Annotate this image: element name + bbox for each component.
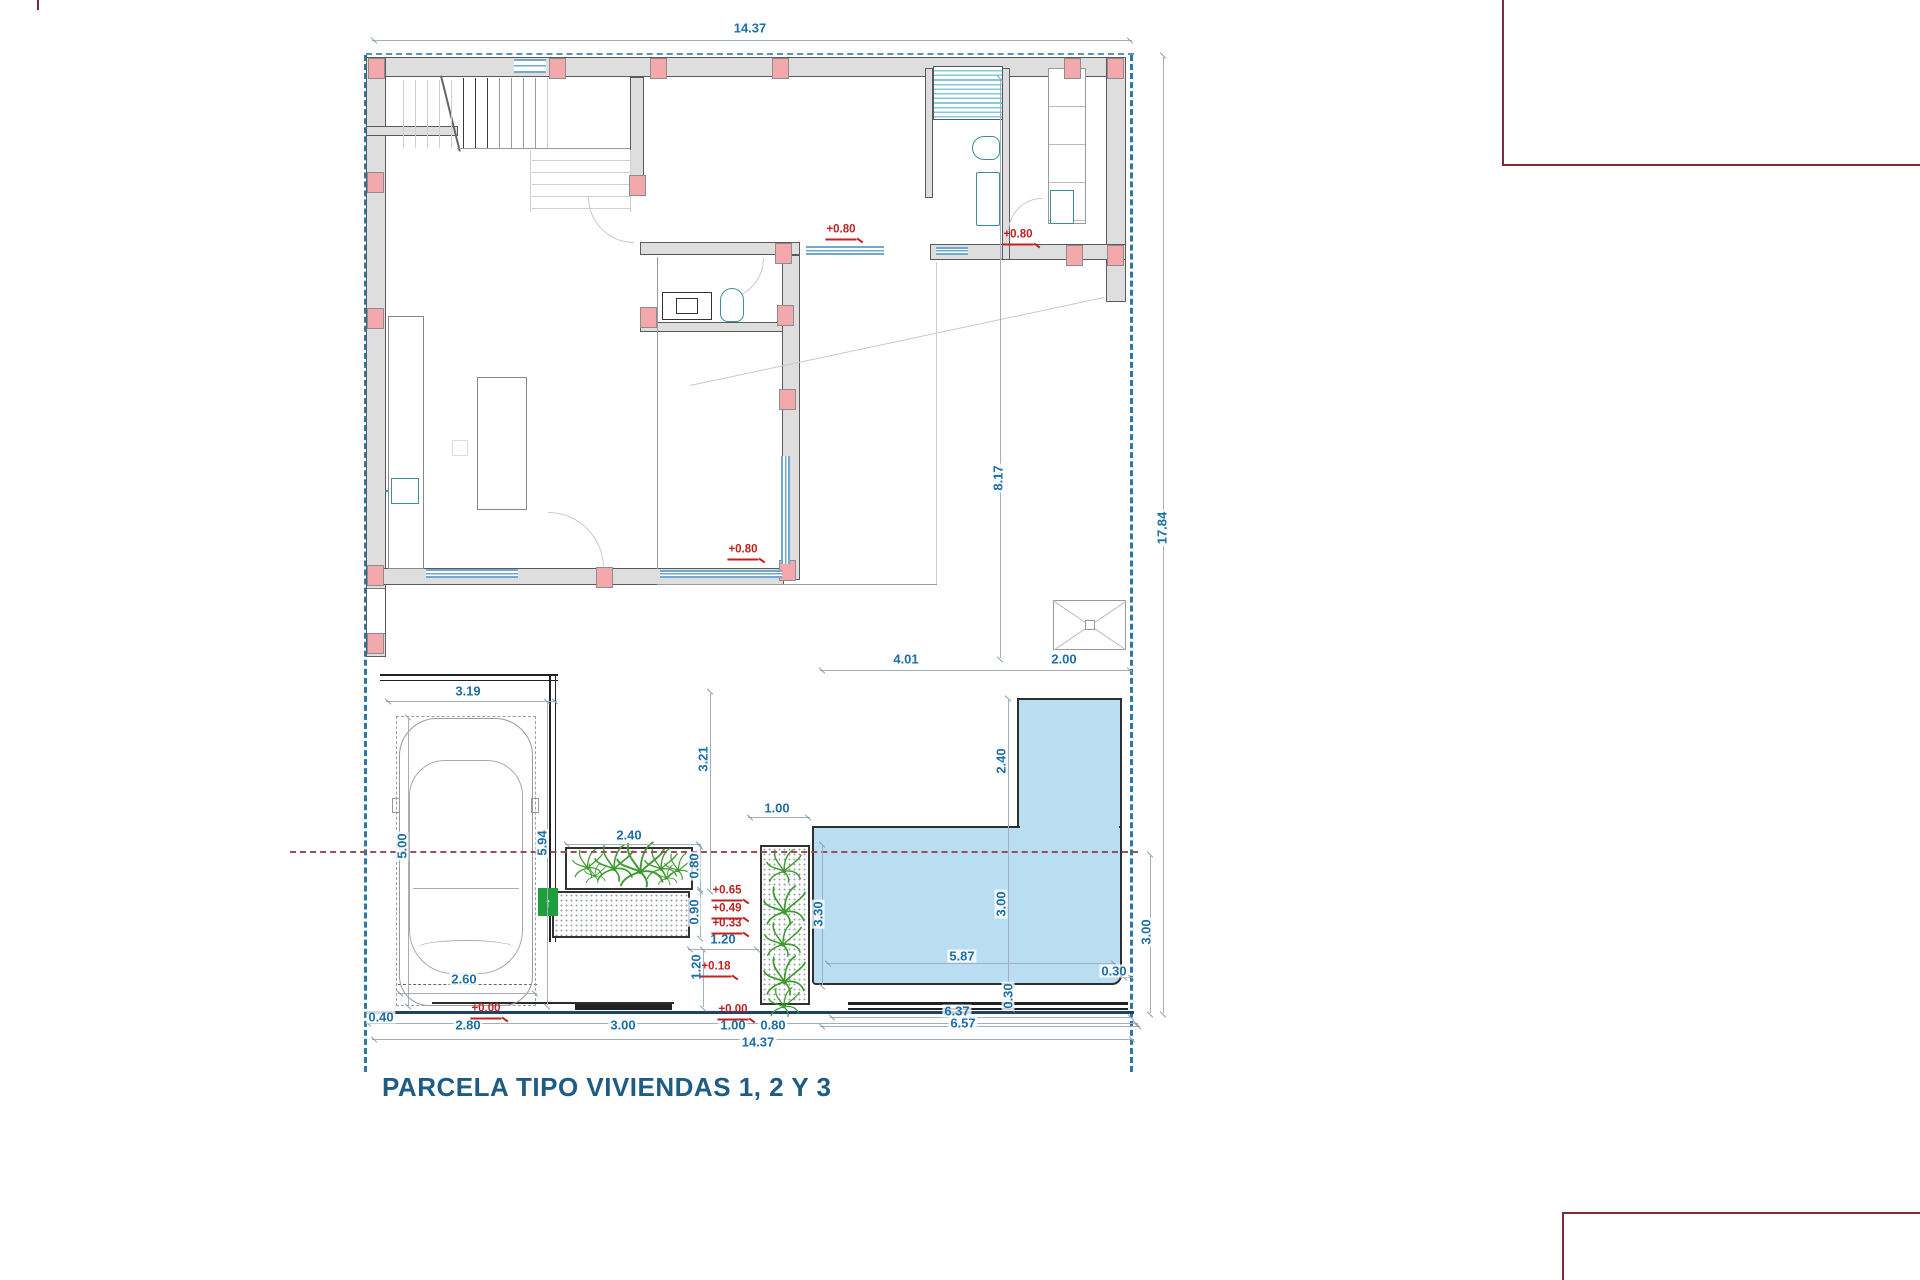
dimension-label: 0.30 bbox=[1002, 981, 1015, 1010]
frame-bottom-right-vertical bbox=[1562, 1212, 1564, 1280]
dimension-label: 0.30 bbox=[1099, 965, 1128, 978]
frame-top-right-vertical bbox=[1502, 0, 1504, 166]
dimension-label: 14.37 bbox=[732, 22, 769, 35]
column bbox=[1107, 245, 1124, 266]
column bbox=[1064, 58, 1081, 79]
plant-icon bbox=[584, 862, 606, 884]
level-label: +0.80 bbox=[727, 545, 758, 561]
car-rear-window bbox=[417, 940, 515, 956]
plant-icon bbox=[764, 920, 802, 958]
dimension-label: 4.01 bbox=[891, 653, 920, 666]
dimension-line bbox=[830, 1017, 1133, 1018]
construction-line bbox=[475, 78, 476, 148]
plant-icon bbox=[768, 986, 800, 1018]
level-label: +0.00 bbox=[717, 1005, 748, 1021]
dimension-line bbox=[1008, 700, 1009, 986]
construction-line bbox=[657, 257, 658, 569]
dimension-label: 17.84 bbox=[1156, 510, 1169, 547]
window bbox=[781, 456, 790, 564]
window bbox=[426, 569, 518, 578]
arrow-up-icon: ↑ bbox=[545, 895, 552, 910]
column bbox=[779, 389, 796, 410]
construction-line bbox=[532, 160, 630, 161]
dimension-line bbox=[688, 949, 759, 950]
kitchen-island bbox=[477, 377, 527, 510]
car-mirror-left bbox=[392, 798, 400, 813]
construction-line bbox=[530, 150, 531, 212]
construction-line bbox=[532, 196, 630, 197]
level-label: +0.00 bbox=[470, 1004, 501, 1020]
walkway-step-b bbox=[848, 1002, 1128, 1005]
dimension-label: 2.80 bbox=[453, 1019, 482, 1032]
bath-vanity bbox=[976, 172, 1000, 226]
dimension-label: 0.80 bbox=[688, 851, 701, 880]
dimension-label: 3.19 bbox=[453, 685, 482, 698]
dimension-label: 2.00 bbox=[1049, 653, 1078, 666]
level-label: +0.80 bbox=[1002, 230, 1033, 246]
car bbox=[399, 718, 533, 1006]
terrace-slope-line bbox=[690, 297, 1104, 386]
powder-sink-basin bbox=[676, 298, 698, 314]
parcel-boundary-top bbox=[366, 53, 1134, 55]
pool-seam-cover bbox=[1020, 820, 1119, 832]
column bbox=[775, 243, 792, 264]
dimension-label: 3.00 bbox=[995, 889, 1008, 918]
pool-arm bbox=[1017, 698, 1122, 830]
column bbox=[549, 58, 566, 79]
column bbox=[777, 305, 794, 326]
dimension-label: 2.60 bbox=[449, 973, 478, 986]
dimension-label: 3.30 bbox=[812, 899, 825, 928]
dimension-line bbox=[408, 719, 409, 1005]
dimension-label: 1.20 bbox=[708, 933, 737, 946]
walkway-step-a bbox=[575, 1004, 672, 1010]
dimension-label: 2.40 bbox=[995, 746, 1008, 775]
dimension-label: 6.57 bbox=[948, 1017, 977, 1030]
construction-line bbox=[532, 184, 630, 185]
construction-line bbox=[499, 78, 500, 148]
car-mirror-right bbox=[531, 798, 539, 813]
construction-line bbox=[403, 80, 404, 148]
dimension-label: 3.21 bbox=[697, 744, 710, 773]
dimension-label: 3.00 bbox=[1140, 917, 1153, 946]
kitchen-sink bbox=[391, 478, 419, 504]
column bbox=[1066, 245, 1083, 266]
wall-bath-divider bbox=[925, 68, 933, 198]
dimension-line bbox=[748, 817, 810, 818]
window bbox=[514, 59, 546, 73]
dimension-label: 3.00 bbox=[608, 1019, 637, 1032]
column bbox=[650, 58, 667, 79]
walkway-step-c bbox=[848, 1008, 1128, 1010]
dimension-line bbox=[565, 844, 701, 845]
kitchen-faint-square bbox=[452, 440, 468, 456]
dimension-line bbox=[820, 1026, 1140, 1027]
dimension-line bbox=[398, 993, 537, 994]
level-label: +0.80 bbox=[825, 225, 856, 241]
car-roof-line bbox=[413, 888, 519, 889]
dimension-line bbox=[372, 40, 1132, 41]
construction-line bbox=[439, 80, 440, 148]
construction-line bbox=[657, 584, 937, 585]
plant-icon bbox=[656, 864, 678, 886]
column bbox=[1107, 58, 1124, 79]
construction-line bbox=[523, 78, 524, 148]
door-arc-entrance bbox=[548, 512, 604, 568]
door-arc-hall bbox=[588, 197, 634, 243]
construction-line bbox=[511, 78, 512, 148]
construction-line bbox=[451, 80, 452, 148]
column bbox=[367, 172, 384, 193]
dimension-label: 0.80 bbox=[758, 1019, 787, 1032]
construction-line bbox=[427, 80, 428, 148]
column bbox=[367, 633, 384, 654]
column bbox=[367, 308, 384, 329]
column bbox=[367, 565, 384, 586]
dimension-line bbox=[1000, 80, 1001, 658]
construction-line bbox=[547, 78, 548, 148]
wall-top bbox=[366, 57, 1126, 77]
dimension-label: 1.00 bbox=[718, 1019, 747, 1032]
drawing-title: PARCELA TIPO VIVIENDAS 1, 2 Y 3 bbox=[382, 1072, 831, 1103]
window bbox=[660, 570, 782, 578]
bath-toilet bbox=[972, 136, 1000, 160]
parcel-boundary-right bbox=[1130, 55, 1133, 1072]
dimension-line bbox=[710, 693, 711, 890]
dimension-label: 0.40 bbox=[366, 1011, 395, 1024]
column bbox=[772, 58, 789, 79]
shower bbox=[933, 66, 1003, 120]
dimension-label: 14.37 bbox=[740, 1036, 777, 1049]
frame-bottom-right-horizontal bbox=[1562, 1212, 1920, 1214]
wall-left-opening bbox=[367, 588, 385, 634]
dimension-label: 1.00 bbox=[762, 802, 791, 815]
level-label: +0.65 bbox=[711, 886, 742, 902]
construction-line bbox=[487, 78, 488, 148]
frame-tick-top-left bbox=[37, 0, 39, 10]
construction-line bbox=[936, 262, 937, 584]
dimension-label: 0.90 bbox=[688, 897, 701, 926]
powder-toilet bbox=[720, 288, 744, 322]
dressing-sink bbox=[1050, 190, 1074, 224]
level-label: +0.18 bbox=[700, 962, 731, 978]
gravel-bed bbox=[552, 891, 690, 938]
construction-line bbox=[535, 78, 536, 148]
plant-icon bbox=[766, 848, 802, 884]
construction-line bbox=[532, 172, 630, 173]
floor-plan-sheet: ↑ 14.3714.3717.848.174.012.002.403.003.3… bbox=[0, 0, 1920, 1280]
dimension-label: 2.40 bbox=[614, 829, 643, 842]
column bbox=[596, 567, 613, 588]
entrance-arrow-marker: ↑ bbox=[538, 888, 558, 916]
skylight-center bbox=[1085, 620, 1095, 630]
dimension-label: 5.87 bbox=[947, 950, 976, 963]
wall-powder-south bbox=[640, 322, 800, 332]
dimension-line bbox=[820, 670, 1132, 671]
level-label: +0.33 bbox=[711, 919, 742, 935]
construction-line bbox=[415, 80, 416, 148]
dimension-label: 5.00 bbox=[396, 831, 409, 860]
window bbox=[806, 246, 884, 255]
column bbox=[640, 307, 657, 328]
construction-line bbox=[532, 208, 630, 209]
frame-top-right-horizontal bbox=[1502, 164, 1920, 166]
column bbox=[629, 175, 646, 196]
wall-stair-landing bbox=[366, 126, 458, 136]
construction-line bbox=[463, 78, 464, 148]
door-arc-bathroom bbox=[1008, 198, 1042, 232]
dimension-line bbox=[386, 701, 557, 702]
column bbox=[368, 58, 385, 79]
construction-line bbox=[457, 148, 630, 149]
kitchen-counter bbox=[388, 316, 424, 569]
dimension-label: 5.94 bbox=[536, 828, 549, 857]
carport-roof-edge bbox=[380, 674, 558, 681]
dimension-label: 8.17 bbox=[992, 463, 1005, 492]
section-line bbox=[290, 851, 1138, 853]
window bbox=[936, 247, 968, 255]
